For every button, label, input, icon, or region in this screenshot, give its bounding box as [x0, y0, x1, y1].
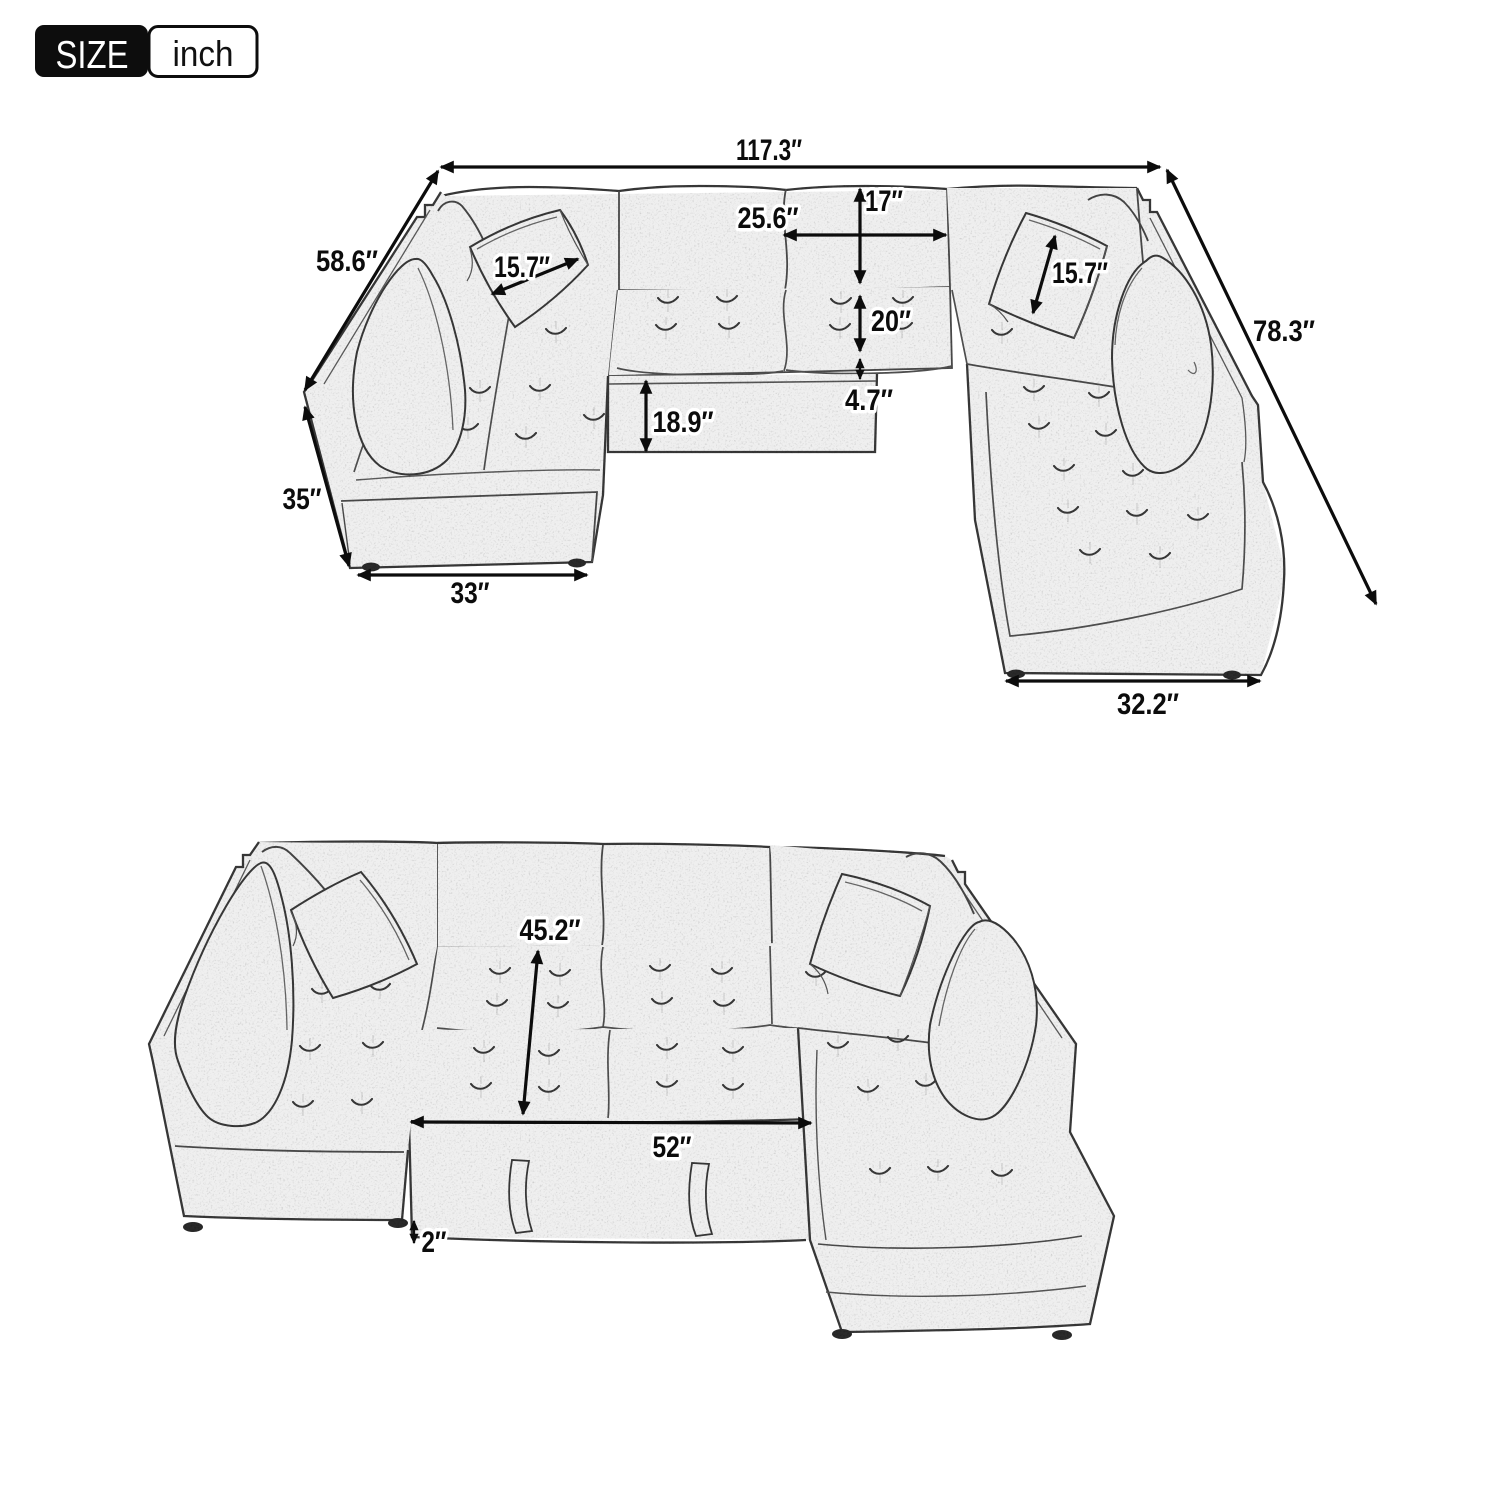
- svg-text:SIZE: SIZE: [56, 34, 129, 77]
- svg-text:78.3″: 78.3″: [1253, 315, 1315, 348]
- svg-text:15.7″: 15.7″: [494, 251, 550, 284]
- svg-text:15.7″: 15.7″: [1052, 257, 1108, 290]
- svg-text:20″: 20″: [871, 305, 911, 338]
- svg-text:35″: 35″: [283, 483, 322, 516]
- svg-text:58.6″: 58.6″: [316, 245, 378, 278]
- svg-text:4.7″: 4.7″: [845, 384, 893, 417]
- svg-text:17″: 17″: [865, 185, 903, 218]
- svg-text:117.3″: 117.3″: [736, 134, 802, 167]
- svg-text:inch: inch: [173, 33, 234, 74]
- svg-text:2″: 2″: [422, 1226, 447, 1259]
- svg-text:32.2″: 32.2″: [1117, 688, 1179, 721]
- svg-text:45.2″: 45.2″: [520, 914, 581, 947]
- svg-text:25.6″: 25.6″: [738, 202, 799, 235]
- svg-text:33″: 33″: [451, 577, 490, 610]
- svg-text:18.9″: 18.9″: [653, 406, 714, 439]
- svg-text:52″: 52″: [653, 1131, 692, 1164]
